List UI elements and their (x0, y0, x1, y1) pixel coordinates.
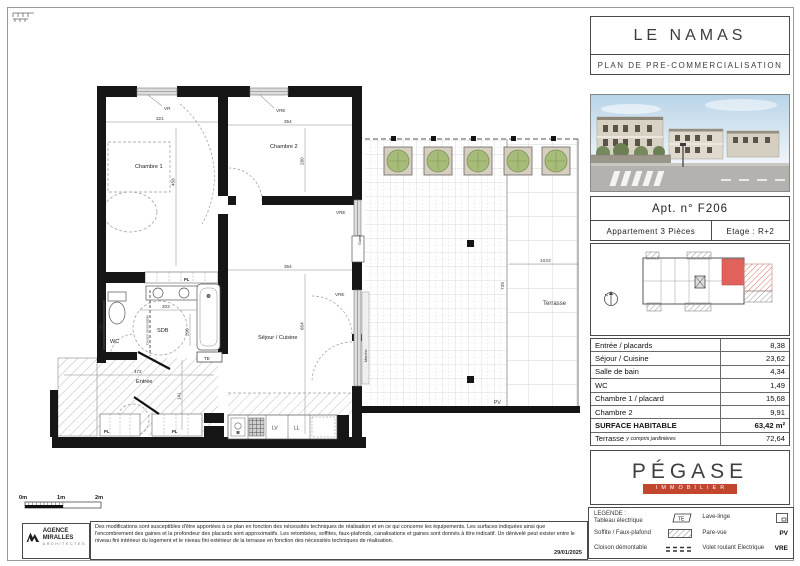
brand-block: PÉGASE IMMOBILIER (590, 450, 790, 505)
dim-280: 280 (300, 157, 305, 165)
legend-label: Tableau électrique (594, 518, 643, 524)
row-value: 4,34 (721, 366, 789, 378)
sejour-label: Séjour / Cuisine (258, 335, 298, 341)
ll-label: LL (294, 426, 300, 432)
kitchen-counter: LV LL (228, 415, 337, 439)
sdb-label: SDB (157, 328, 169, 334)
plan-date: 29/01/2025 (554, 550, 582, 557)
dim-354: 354 (284, 264, 292, 269)
scale-bar: 0m 1m 2m (19, 495, 103, 508)
apartment-info-block: Apt. n° F206 Appartement 3 Pièces Etage … (590, 196, 790, 241)
building-photo-art (591, 95, 789, 191)
plan-sheet: Terrasse PV 1023 735 (0, 0, 800, 566)
scale-2m: 2m (95, 495, 103, 501)
legend-title: LEGENDE : (594, 511, 626, 517)
total-value: 63,42 m² (721, 419, 789, 431)
scale-1m: 1m (57, 495, 65, 501)
key-plan (590, 243, 790, 336)
terrasse-note: y compris jardinières (626, 436, 675, 442)
table-row: Séjour / Cuisine23,62 (591, 352, 789, 365)
vre-label: VRE (335, 292, 344, 297)
dim-472: 472 (134, 369, 142, 374)
terrasse-label-text: Terrasse (595, 434, 624, 443)
agency-subtitle: ARCHITECTES (43, 542, 86, 546)
vre-label: VRE (276, 108, 285, 113)
lv-label: LV (272, 426, 278, 432)
wc-label: WC (110, 339, 119, 345)
agency-name-1: AGENCE (43, 528, 86, 535)
vre-symbol: VRE (775, 545, 788, 552)
legend-item-cloison: Cloison démontable (594, 542, 692, 555)
lave-linge-icon (776, 513, 788, 523)
title-block: LE NAMAS PLAN DE PRE-COMMERCIALISATION (590, 16, 790, 75)
sanitary-fixtures (108, 284, 222, 362)
dim-458: 458 (171, 178, 176, 186)
north-compass (605, 291, 618, 306)
building-photo (590, 94, 790, 192)
terrasse-label: Terrasse (543, 301, 567, 307)
project-subtitle: PLAN DE PRE-COMMERCIALISATION (591, 55, 789, 75)
dim-735: 735 (500, 282, 506, 290)
disclaimer-block: Des modifications sont susceptibles d'êt… (90, 521, 588, 560)
dim-150: 150 (99, 323, 104, 331)
scale-0m: 0m (19, 495, 27, 501)
row-value: 23,62 (721, 352, 789, 364)
row-label: Chambre 2 (591, 406, 721, 418)
te-icon: TE (672, 513, 692, 523)
vr-label: VR (164, 106, 171, 111)
legend-label: Pare-vue (702, 530, 726, 537)
row-label: Entrée / placards (591, 339, 721, 351)
chambre1-label: Chambre 1 (135, 164, 163, 170)
table-row: Salle de bain4,34 (591, 366, 789, 379)
apartment-floor: Etage : R+2 (712, 221, 789, 241)
table-row: WC1,49 (591, 379, 789, 392)
entree-label: Entrée (136, 379, 152, 385)
disclaimer-text: Des modifications sont susceptibles d'êt… (95, 524, 575, 544)
terrace-parapet (360, 406, 580, 413)
legend-item-voletroulant: Volet roulant Electrique VRE (702, 542, 788, 555)
apartment-number: Apt. n° F206 (591, 197, 789, 221)
row-label: WC (591, 379, 721, 391)
miralles-logo-icon (26, 527, 40, 547)
cloison-label: Cloison démontable (146, 315, 150, 345)
row-value: 8,38 (721, 339, 789, 351)
table-total-row: SURFACE HABITABLE63,42 m² (591, 419, 789, 432)
row-value: 9,91 (721, 406, 789, 418)
table-row: Entrée / placards8,38 (591, 339, 789, 352)
pv-symbol: PV (779, 530, 788, 537)
apartment-type: Appartement 3 Pièces (591, 221, 712, 241)
legend-label: Lave-linge (702, 514, 730, 521)
pv-annotation: PV (494, 400, 501, 406)
legend-item-tableau: LEGENDE :Tableau électrique TE (594, 511, 692, 525)
table-terrasse-row: Terrasse y compris jardinières 72,64 (591, 433, 789, 446)
legend-item-soffite: Soffite / Faux-plafond (594, 527, 692, 540)
terrace: Terrasse PV 1023 735 (360, 136, 580, 413)
architect-logo-block: AGENCE MIRALLES ARCHITECTES (22, 523, 90, 559)
registration-marks (13, 13, 34, 22)
table-row: Chambre 1 / placard15,68 (591, 393, 789, 406)
dim-654: 654 (300, 322, 305, 330)
soffite-icon (668, 529, 692, 538)
marche-label: Marche (364, 349, 368, 362)
legend-label: Soffite / Faux-plafond (594, 530, 651, 537)
dim-141: 141 (177, 392, 182, 400)
row-value: 15,68 (721, 393, 789, 405)
agency-name-2: MIRALLES (43, 535, 86, 542)
surface-table: Entrée / placards8,38 Séjour / Cuisine23… (590, 338, 790, 446)
brand-tagline: IMMOBILIER (643, 484, 737, 494)
row-label: Chambre 1 / placard (591, 393, 721, 405)
highlighted-terrace (744, 264, 772, 291)
row-value: 1,49 (721, 379, 789, 391)
legend-label: Volet roulant Electrique (702, 545, 764, 552)
pl-label: PL (184, 277, 190, 282)
pl-label: PL (172, 429, 178, 434)
dim-1023: 1023 (540, 258, 551, 264)
dim-203: 203 (162, 304, 170, 309)
legend-item-lavelinge: Lave-linge (702, 511, 788, 524)
dim-321: 321 (156, 116, 164, 121)
window-labels: VR VRE VRE VRE Gaine Marche (148, 95, 368, 362)
legend-label: Cloison démontable (594, 545, 647, 552)
floor-plan-svg: Terrasse PV 1023 735 (0, 0, 600, 520)
svg-text:TE: TE (678, 516, 685, 522)
table-row: Chambre 29,91 (591, 406, 789, 419)
chambre2-label: Chambre 2 (270, 144, 298, 150)
highlighted-unit (722, 259, 744, 285)
total-label: SURFACE HABITABLE (591, 419, 721, 431)
key-plan-svg (591, 244, 789, 335)
windows (137, 88, 369, 386)
te-label: TE (204, 356, 210, 361)
planters (384, 147, 570, 175)
terrasse-value: 72,64 (721, 433, 789, 445)
terrasse-row-label: Terrasse y compris jardinières (591, 433, 721, 445)
legend-block: LEGENDE :Tableau électrique TE Soffite /… (588, 507, 794, 559)
gaine-label: Gaine (358, 235, 362, 245)
brand-name: PÉGASE (632, 461, 748, 482)
project-title: LE NAMAS (591, 17, 789, 55)
pl-label: PL (104, 429, 110, 434)
dim-206: 206 (185, 328, 190, 336)
row-label: Salle de bain (591, 366, 721, 378)
cloison-icon (666, 545, 692, 553)
legend-item-parevue: Pare-vue PV (702, 527, 788, 540)
vre-label: VRE (336, 210, 345, 215)
dim-354: 354 (284, 119, 292, 124)
row-label: Séjour / Cuisine (591, 352, 721, 364)
